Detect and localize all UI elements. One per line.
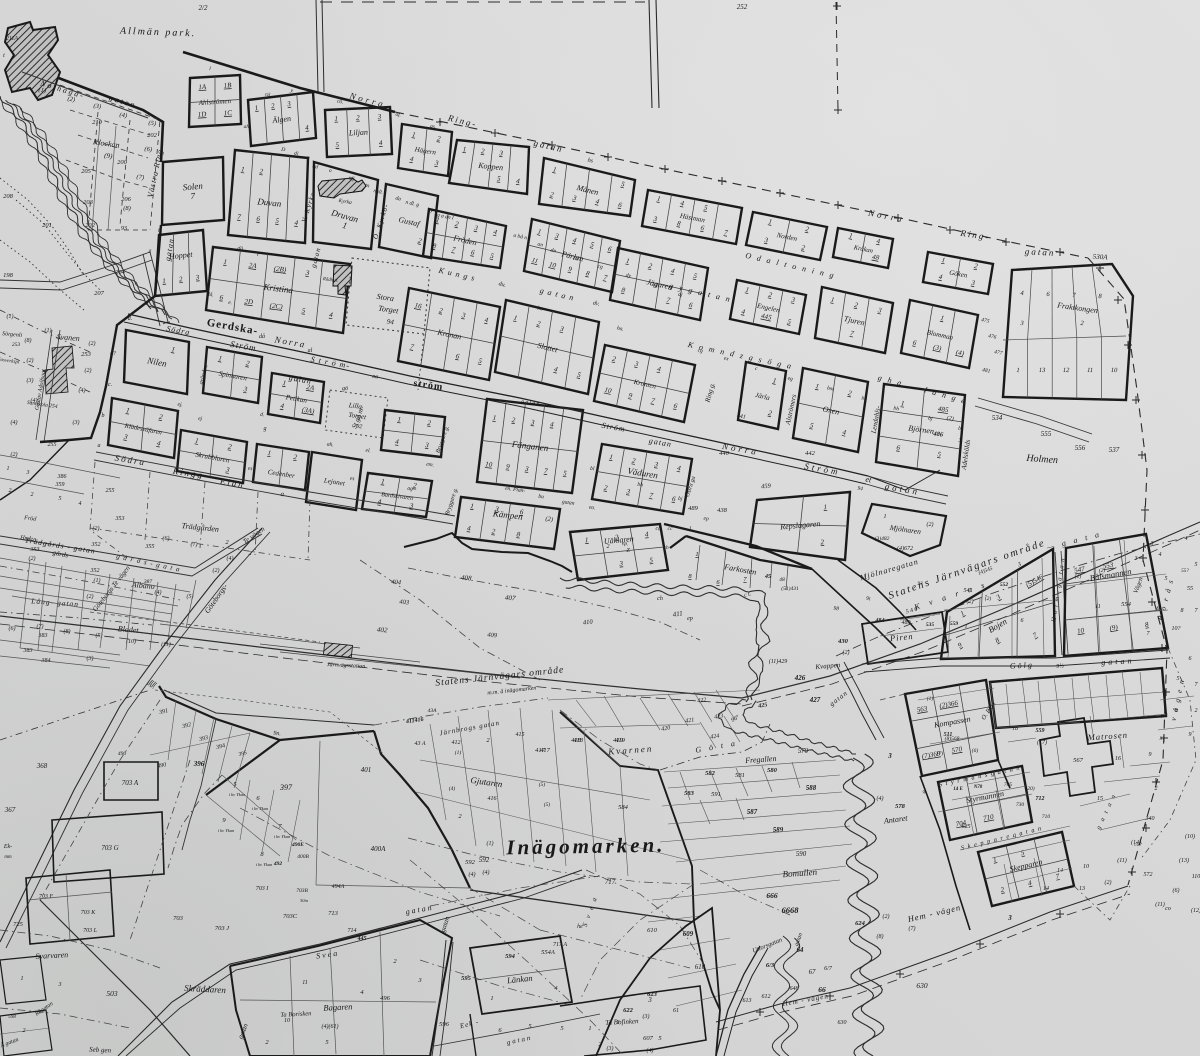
svg-text:ep: ep — [687, 616, 693, 622]
svg-text:11: 11 — [1095, 604, 1101, 610]
svg-text:Gölg: Gölg — [1010, 660, 1034, 670]
svg-text:421: 421 — [685, 716, 695, 724]
svg-text:412: 412 — [452, 739, 461, 746]
svg-text:422: 422 — [697, 696, 707, 704]
svg-text:587: 587 — [747, 809, 758, 816]
svg-text:622: 622 — [623, 1007, 634, 1014]
svg-text:1C: 1C — [223, 109, 232, 117]
svg-text:(2): (2) — [85, 367, 92, 374]
svg-text:511: 511 — [944, 732, 953, 738]
svg-text:(6): (6) — [1173, 887, 1180, 894]
svg-text:2: 2 — [9, 488, 12, 494]
svg-text:(2B): (2B) — [273, 265, 287, 275]
svg-text:409: 409 — [487, 632, 498, 640]
svg-text:(20): (20) — [1025, 785, 1034, 792]
svg-text:Seb gen: Seb gen — [89, 1045, 112, 1054]
svg-text:424: 424 — [710, 732, 720, 740]
svg-text:(8): (8) — [25, 337, 32, 344]
svg-text:609: 609 — [683, 931, 694, 938]
svg-text:203: 203 — [83, 199, 94, 206]
svg-text:93: 93 — [121, 226, 127, 232]
svg-text:578: 578 — [895, 803, 906, 810]
svg-text:(11): (11) — [1117, 857, 1127, 864]
svg-text:10: 10 — [1111, 367, 1118, 374]
svg-text:211A: 211A — [6, 36, 19, 42]
svg-text:4: 4 — [1159, 551, 1162, 558]
svg-text:534: 534 — [992, 414, 1003, 422]
svg-text:4: 4 — [79, 500, 82, 507]
svg-text:45: 45 — [764, 574, 771, 580]
svg-text:1B: 1B — [223, 81, 232, 89]
svg-text:427: 427 — [809, 696, 821, 704]
svg-text:490: 490 — [118, 750, 127, 757]
svg-text:3: 3 — [647, 996, 652, 1004]
svg-text:201: 201 — [42, 222, 52, 229]
svg-text:630: 630 — [916, 981, 928, 990]
svg-text:i kv Ykan: i kv Ykan — [256, 862, 273, 867]
svg-text:559: 559 — [1036, 728, 1045, 734]
svg-text:(5): (5) — [539, 781, 546, 788]
svg-text:368: 368 — [36, 762, 48, 770]
svg-text:353: 353 — [115, 516, 125, 522]
svg-text:(7): (7) — [191, 541, 198, 548]
svg-text:403: 403 — [399, 599, 410, 607]
svg-text:em.: em. — [426, 461, 435, 468]
svg-text:713: 713 — [328, 910, 339, 917]
svg-text:2: 2 — [607, 544, 610, 550]
svg-text:es: es — [349, 476, 354, 483]
svg-text:535: 535 — [926, 622, 935, 628]
svg-text:703 G: 703 G — [101, 844, 118, 852]
svg-text:b: b — [102, 413, 105, 419]
svg-text:gatan: gatan — [1101, 656, 1135, 667]
svg-text:N78: N78 — [973, 785, 983, 790]
svg-text:666: 666 — [766, 891, 778, 900]
svg-text:(13): (13) — [1179, 857, 1189, 864]
svg-text:410: 410 — [583, 618, 594, 626]
svg-text:459: 459 — [761, 483, 772, 491]
svg-text:3: 3 — [887, 752, 892, 760]
svg-text:541: 541 — [964, 587, 973, 594]
svg-text:208: 208 — [3, 193, 14, 200]
svg-text:703 F: 703 F — [39, 894, 54, 900]
svg-text:el.: el. — [365, 448, 371, 455]
svg-text:Inägomarken.: Inägomarken. — [505, 833, 666, 860]
svg-text:3: 3 — [1007, 914, 1012, 922]
svg-text:48: 48 — [779, 576, 785, 583]
svg-text:340: 340 — [1145, 815, 1155, 822]
svg-text:646: 646 — [790, 985, 799, 992]
svg-text:(1): (1) — [7, 313, 14, 320]
svg-text:353: 353 — [30, 547, 40, 553]
svg-text:(51)431: (51)431 — [781, 585, 799, 592]
svg-text:67: 67 — [809, 969, 816, 976]
svg-text:567: 567 — [1073, 757, 1084, 764]
svg-text:(6): (6) — [9, 625, 16, 632]
svg-text:(2): (2) — [213, 567, 220, 574]
svg-text:(4): (4) — [155, 589, 162, 596]
svg-text:14 E: 14 E — [953, 787, 963, 792]
svg-text:(4): (4) — [119, 111, 128, 119]
svg-text:(2): (2) — [27, 357, 34, 364]
svg-text:Bagaren: Bagaren — [323, 1001, 352, 1013]
svg-text:(8): (8) — [877, 933, 884, 940]
svg-text:725: 725 — [13, 921, 24, 928]
svg-text:(4): (4) — [647, 1047, 654, 1054]
svg-text:552: 552 — [1000, 582, 1009, 588]
svg-text:(4): (4) — [469, 871, 476, 878]
svg-text:ah.: ah. — [244, 124, 251, 130]
svg-text:(11): (11) — [1155, 901, 1165, 908]
svg-text:537: 537 — [1109, 446, 1120, 454]
svg-text:555: 555 — [1041, 430, 1052, 438]
svg-text:3: 3 — [1134, 556, 1138, 562]
svg-text:404: 404 — [391, 579, 402, 587]
svg-text:(3): (3) — [73, 419, 80, 426]
svg-text:397: 397 — [279, 783, 293, 792]
svg-text:572: 572 — [1144, 872, 1153, 878]
svg-text:559: 559 — [950, 621, 959, 627]
svg-text:d.: d. — [128, 316, 133, 322]
svg-text:730: 730 — [1016, 802, 1025, 808]
svg-text:11: 11 — [302, 980, 308, 986]
svg-text:253: 253 — [12, 342, 21, 348]
svg-text:490E: 490E — [291, 842, 304, 848]
svg-text:1: 1 — [334, 115, 338, 123]
svg-text:Holmen: Holmen — [1025, 453, 1058, 466]
svg-text:ej.: ej. — [177, 402, 183, 409]
svg-text:1A: 1A — [198, 83, 207, 91]
svg-text:703: 703 — [173, 915, 184, 922]
svg-text:503: 503 — [106, 989, 118, 998]
svg-text:588: 588 — [806, 785, 817, 792]
svg-text:584: 584 — [618, 804, 629, 811]
svg-text:(2): (2) — [89, 340, 96, 347]
svg-text:426: 426 — [794, 674, 806, 682]
svg-text:9n.: 9n. — [273, 731, 281, 738]
svg-text:592: 592 — [465, 859, 476, 866]
svg-text:a: a — [98, 443, 101, 449]
svg-text:(2): (2) — [927, 521, 934, 528]
svg-text:3?: 3? — [1160, 737, 1166, 742]
svg-text:630: 630 — [838, 1020, 847, 1026]
svg-text:(8): (8) — [123, 205, 131, 212]
svg-text:(3): (3) — [87, 655, 94, 662]
svg-text:eo.: eo. — [588, 505, 595, 512]
svg-text:e?: e? — [110, 351, 116, 357]
svg-text:9: 9 — [1149, 752, 1152, 758]
svg-text:419: 419 — [615, 737, 626, 744]
svg-text:598: 598 — [8, 1015, 16, 1020]
svg-text:485: 485 — [938, 405, 950, 414]
svg-text:407: 407 — [505, 593, 517, 602]
svg-text:6: 6 — [1021, 618, 1024, 624]
svg-text:9: 9 — [1189, 732, 1192, 738]
svg-text:580: 580 — [767, 767, 778, 774]
svg-text:(2): (2) — [1099, 567, 1106, 574]
svg-text:co: co — [1165, 906, 1171, 912]
svg-text:2/2: 2/2 — [199, 4, 208, 12]
svg-text:6: 6 — [1189, 656, 1192, 662]
svg-text:6/3: 6/3 — [766, 962, 775, 969]
svg-text:8: 8 — [1181, 608, 1184, 614]
svg-text:252: 252 — [737, 3, 748, 11]
svg-text:(11)429: (11)429 — [769, 658, 788, 665]
svg-text:492: 492 — [273, 861, 283, 867]
svg-text:i kv Ykan: i kv Ykan — [274, 834, 291, 839]
svg-text:206: 206 — [121, 196, 132, 203]
svg-text:352: 352 — [90, 568, 100, 574]
svg-text:13: 13 — [1079, 886, 1085, 892]
svg-text:c.: c. — [108, 382, 112, 388]
svg-text:596: 596 — [439, 1021, 450, 1028]
svg-text:3: 3 — [58, 982, 62, 988]
svg-text:(5): (5) — [148, 119, 157, 127]
svg-text:Liljan: Liljan — [348, 128, 369, 138]
svg-text:(2): (2) — [1105, 879, 1112, 886]
svg-text:355: 355 — [145, 544, 155, 550]
svg-text:610: 610 — [647, 927, 658, 934]
svg-text:207: 207 — [94, 290, 105, 297]
svg-text:415: 415 — [516, 731, 525, 738]
svg-text:205: 205 — [81, 168, 92, 175]
svg-text:530A: 530A — [1093, 253, 1109, 262]
svg-text:2: 2 — [1155, 786, 1158, 792]
svg-text:11: 11 — [1087, 367, 1093, 374]
svg-text:(6): (6) — [144, 145, 153, 153]
svg-text:61: 61 — [673, 1008, 679, 1014]
svg-text:(4): (4) — [483, 869, 490, 876]
svg-text:590: 590 — [796, 851, 807, 858]
svg-text:1: 1 — [695, 551, 698, 558]
svg-text:mm: mm — [4, 855, 12, 860]
svg-text:703 J: 703 J — [215, 925, 230, 932]
svg-text:710: 710 — [1042, 814, 1051, 820]
svg-text:(12): (12) — [1191, 907, 1200, 914]
svg-text:(10): (10) — [1185, 833, 1195, 840]
svg-text:bu: bu — [538, 494, 545, 501]
svg-text:594: 594 — [505, 953, 516, 960]
svg-text:(14): (14) — [1131, 839, 1141, 846]
svg-text:400A: 400A — [371, 845, 387, 853]
svg-text:(3)482: (3)482 — [875, 535, 890, 542]
svg-text:bh: bh — [637, 482, 644, 489]
svg-text:(4)(61): (4)(61) — [322, 1023, 339, 1030]
svg-text:2D: 2D — [244, 297, 253, 306]
svg-text:396: 396 — [193, 760, 205, 768]
svg-text:703 L: 703 L — [83, 928, 98, 934]
svg-text:607: 607 — [643, 1035, 654, 1042]
svg-text:2: 2 — [31, 492, 34, 498]
svg-text:554: 554 — [1121, 601, 1132, 608]
svg-text:98: 98 — [833, 606, 840, 613]
svg-text:556: 556 — [1075, 444, 1086, 452]
svg-text:(1): (1) — [94, 577, 101, 584]
svg-text:703 A: 703 A — [122, 779, 139, 787]
svg-text:589: 589 — [773, 827, 784, 834]
svg-text:255: 255 — [106, 488, 115, 494]
svg-text:489: 489 — [688, 505, 699, 512]
svg-text:9?: 9? — [918, 582, 924, 587]
svg-text:(4): (4) — [79, 387, 86, 394]
svg-text:1: 1 — [585, 536, 589, 544]
svg-text:(4)672: (4)672 — [897, 545, 913, 552]
svg-text:(1): (1) — [455, 749, 462, 756]
svg-text:202: 202 — [85, 222, 96, 229]
svg-text:703B: 703B — [296, 888, 308, 894]
svg-text:703C: 703C — [283, 913, 298, 920]
svg-text:(6): (6) — [972, 747, 979, 754]
svg-text:110: 110 — [1192, 874, 1200, 880]
svg-text:(2): (2) — [843, 649, 850, 656]
svg-text:1: 1 — [1016, 367, 1019, 374]
svg-text:(2C): (2C) — [269, 302, 283, 312]
svg-text:1: 1 — [7, 466, 10, 472]
svg-text:14: 14 — [1043, 885, 1049, 892]
svg-text:g: g — [264, 426, 267, 432]
svg-text:386: 386 — [57, 474, 67, 480]
svg-text:16: 16 — [1115, 756, 1121, 762]
svg-text:(7): (7) — [909, 925, 916, 932]
svg-text:(3): (3) — [643, 1013, 650, 1020]
svg-text:43 A: 43 A — [414, 740, 425, 747]
svg-text:6/7: 6/7 — [824, 966, 833, 972]
svg-text:(2): (2) — [946, 415, 954, 423]
svg-text:e.: e. — [228, 300, 233, 306]
svg-text:då.: då. — [206, 291, 214, 299]
svg-text:2: 2 — [23, 1028, 26, 1034]
svg-text:3: 3 — [377, 113, 382, 121]
svg-text:(2): (2) — [545, 516, 553, 524]
svg-text:420: 420 — [661, 724, 671, 732]
svg-text:(2): (2) — [883, 913, 890, 920]
svg-text:1: 1 — [490, 995, 493, 1002]
svg-text:(1): (1) — [38, 86, 47, 94]
svg-text:ep: ep — [703, 516, 709, 523]
svg-text:as.: as. — [430, 123, 437, 130]
svg-text:496: 496 — [380, 995, 391, 1002]
svg-text:554A: 554A — [541, 949, 555, 956]
svg-text:591: 591 — [711, 791, 721, 798]
svg-text:430: 430 — [837, 638, 849, 645]
svg-text:(3): (3) — [93, 102, 102, 110]
svg-text:253: 253 — [81, 351, 92, 358]
svg-text:1: 1 — [588, 1025, 591, 1032]
svg-text:442: 442 — [805, 450, 816, 457]
svg-text:cc: cc — [668, 526, 673, 532]
svg-text:9½: 9½ — [1056, 663, 1064, 670]
svg-text:579: 579 — [798, 748, 809, 755]
svg-text:10: 10 — [1083, 864, 1089, 870]
svg-text:(6): (6) — [163, 535, 170, 542]
svg-text:55?: 55? — [1181, 569, 1189, 574]
svg-text:714: 714 — [348, 927, 357, 934]
svg-text:43A: 43A — [428, 707, 438, 714]
svg-text:(7): (7) — [136, 173, 145, 181]
svg-text:ep.: ep. — [621, 541, 628, 548]
svg-text:359: 359 — [55, 482, 65, 488]
svg-text:(7): (7) — [937, 750, 944, 757]
svg-text:då: då — [259, 333, 265, 340]
svg-text:(2): (2) — [87, 593, 94, 600]
svg-text:(1): (1) — [487, 840, 494, 847]
svg-text:3: 3 — [26, 470, 30, 476]
svg-text:703 I: 703 I — [256, 886, 270, 892]
svg-text:401: 401 — [361, 766, 372, 774]
svg-text:i kv Ykan: i kv Ykan — [229, 792, 246, 797]
svg-text:(3): (3) — [607, 1045, 614, 1052]
svg-text:417: 417 — [540, 747, 551, 754]
svg-text:i kv Ykan: i kv Ykan — [218, 828, 235, 833]
svg-text:712: 712 — [1036, 796, 1045, 802]
svg-text:408: 408 — [461, 573, 473, 582]
svg-text:(4): (4) — [449, 785, 456, 792]
svg-text:1: 1 — [884, 514, 887, 520]
svg-text:1: 1 — [21, 976, 24, 982]
svg-text:494A: 494A — [332, 883, 345, 890]
svg-text:438: 438 — [717, 507, 728, 514]
svg-text:(2): (2) — [985, 595, 992, 602]
svg-text:202: 202 — [147, 132, 158, 139]
svg-text:625: 625 — [962, 824, 971, 830]
svg-text:4: 4 — [1185, 535, 1188, 542]
svg-text:489: 489 — [902, 619, 911, 626]
svg-text:1D: 1D — [197, 110, 206, 118]
svg-text:5: 5 — [1195, 562, 1198, 568]
svg-text:(2): (2) — [67, 95, 76, 103]
svg-text:ag: ag — [407, 486, 414, 493]
svg-text:1: 1 — [823, 503, 827, 511]
svg-text:10?: 10? — [1172, 626, 1181, 632]
svg-text:30in: 30in — [300, 898, 309, 903]
svg-text:612: 612 — [762, 994, 771, 1000]
svg-text:613: 613 — [743, 998, 752, 1004]
svg-text:cb: cb — [663, 545, 668, 551]
svg-text:198: 198 — [3, 272, 14, 279]
svg-text:3: 3 — [958, 438, 962, 444]
svg-text:cb: cb — [655, 526, 661, 533]
svg-text:411: 411 — [672, 609, 683, 618]
svg-text:(4): (4) — [877, 795, 884, 802]
svg-text:(1): (1) — [1075, 573, 1082, 580]
svg-text:595: 595 — [461, 975, 472, 982]
svg-text:12: 12 — [1063, 367, 1070, 374]
svg-text:6668: 6668 — [782, 905, 800, 915]
svg-text:es: es — [247, 466, 252, 473]
svg-text:Ek-: Ek- — [3, 844, 12, 850]
svg-text:717 A: 717 A — [553, 942, 567, 948]
svg-text:10: 10 — [284, 1018, 290, 1024]
svg-text:13: 13 — [1039, 367, 1046, 374]
svg-text:v.: v. — [260, 142, 263, 148]
svg-text:(4): (4) — [11, 419, 18, 426]
svg-text:367: 367 — [4, 806, 16, 814]
svg-text:5: 5 — [59, 496, 62, 502]
svg-text:418: 418 — [573, 737, 584, 744]
svg-text:(5): (5) — [544, 801, 551, 808]
svg-text:gatan: gatan — [1025, 246, 1056, 258]
svg-text:ch: ch — [657, 596, 663, 602]
svg-text:gö: gö — [342, 386, 348, 392]
svg-text:416: 416 — [488, 795, 497, 802]
svg-text:2: 2 — [1195, 708, 1198, 714]
svg-text:(3): (3) — [27, 377, 34, 384]
svg-text:255: 255 — [48, 442, 57, 448]
svg-text:55: 55 — [1187, 586, 1193, 592]
svg-text:703 K: 703 K — [81, 910, 97, 916]
svg-text:(1): (1) — [45, 327, 52, 334]
svg-text:717: 717 — [605, 879, 616, 886]
